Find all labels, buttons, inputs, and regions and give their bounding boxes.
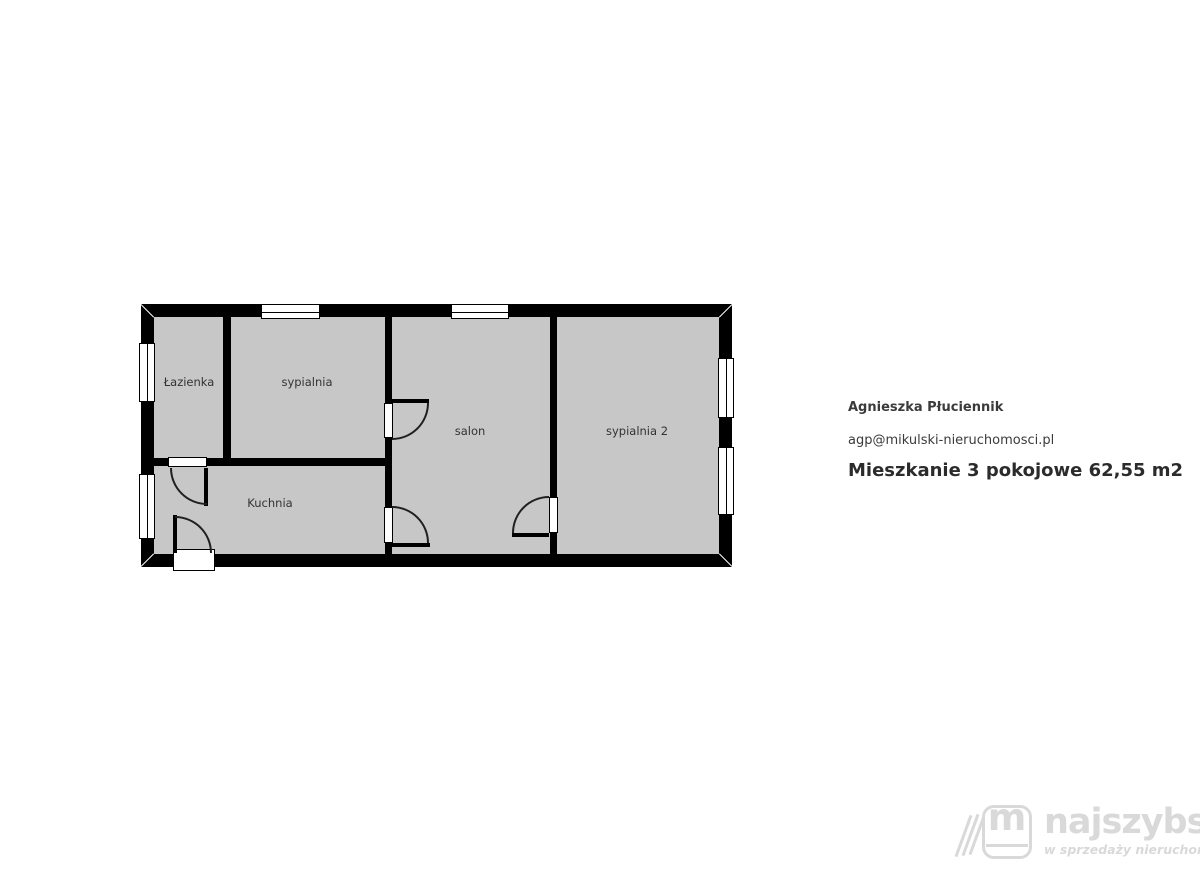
wall-sypialnia-kuchnia — [207, 458, 391, 466]
floor-plan-layer: Łazienka sypialnia salon sypialnia 2 Kuc… — [141, 304, 732, 567]
wall-kuchnia-salon-lower — [385, 543, 392, 554]
window-glass-line — [726, 448, 727, 514]
window-left-kuchnia — [139, 474, 155, 539]
door-arc-lazienka — [170, 468, 207, 505]
watermark-logo: m najszybsi w sprzedaży nieruchomości — [960, 802, 1196, 868]
window-glass-line — [147, 344, 148, 401]
floor-plan: Łazienka sypialnia salon sypialnia 2 Kuc… — [141, 304, 732, 567]
room-label-lazienka: Łazienka — [164, 375, 215, 389]
page: Łazienka sypialnia salon sypialnia 2 Kuc… — [0, 0, 1200, 878]
agent-info: Agnieszka Płuciennik agp@mikulski-nieruc… — [848, 400, 1183, 481]
agent-email: agp@mikulski-nieruchomosci.pl — [848, 433, 1183, 448]
door-leaf-kuchnia-salon — [392, 543, 430, 547]
corner-miter-top-right — [719, 304, 732, 317]
wall-lazienka-sypialnia — [223, 317, 231, 466]
corner-miter-top-left — [141, 304, 154, 317]
window-top-salon — [451, 304, 509, 319]
door-arc-salon-sypialnia2 — [512, 496, 549, 533]
wall-sypialnia-salon-upper — [385, 317, 392, 403]
room-label-kuchnia: Kuchnia — [247, 496, 292, 510]
logo-baseline — [986, 844, 1028, 847]
room-label-sypialnia2: sypialnia 2 — [606, 424, 668, 438]
logo-m-letter: m — [985, 799, 1029, 836]
door-arc-kuchnia-salon — [392, 506, 429, 543]
room-label-salon: salon — [455, 424, 486, 438]
corner-miter-bottom-right — [719, 553, 732, 566]
room-label-sypialnia: sypialnia — [281, 375, 332, 389]
window-glass-line — [452, 312, 508, 313]
window-left-lazienka — [139, 343, 155, 402]
door-opening-salon-sypialnia2 — [549, 497, 558, 533]
wall-salon-sypialnia2-upper — [550, 317, 557, 497]
logo-tagline: w sprzedaży nieruchomości — [1044, 842, 1194, 857]
wall-sypialnia-salon-mid — [385, 438, 392, 507]
corner-miter-bottom-left — [141, 553, 154, 566]
door-leaf-salon-sypialnia2 — [512, 533, 549, 537]
logo-text: najszybsi w sprzedaży nieruchomości — [1044, 804, 1194, 857]
door-arc-sypialnia-salon — [392, 403, 429, 440]
listing-title: Mieszkanie 3 pokojowe 62,55 m2 — [848, 460, 1183, 481]
window-right-sypialnia2-upper — [718, 358, 734, 418]
logo-brand: najszybsi — [1044, 804, 1194, 841]
agent-name: Agnieszka Płuciennik — [848, 400, 1183, 415]
wall-lazienka-kuchnia-left — [154, 458, 168, 466]
window-glass-line — [726, 359, 727, 417]
logo-m-icon: m — [982, 805, 1032, 859]
door-arc-entrance — [175, 516, 212, 553]
window-top-sypialnia — [261, 304, 320, 319]
window-right-sypialnia2-lower — [718, 447, 734, 515]
window-glass-line — [147, 475, 148, 538]
window-glass-line — [262, 312, 319, 313]
wall-salon-sypialnia2-lower — [550, 533, 557, 554]
door-opening-lazienka — [168, 457, 207, 467]
